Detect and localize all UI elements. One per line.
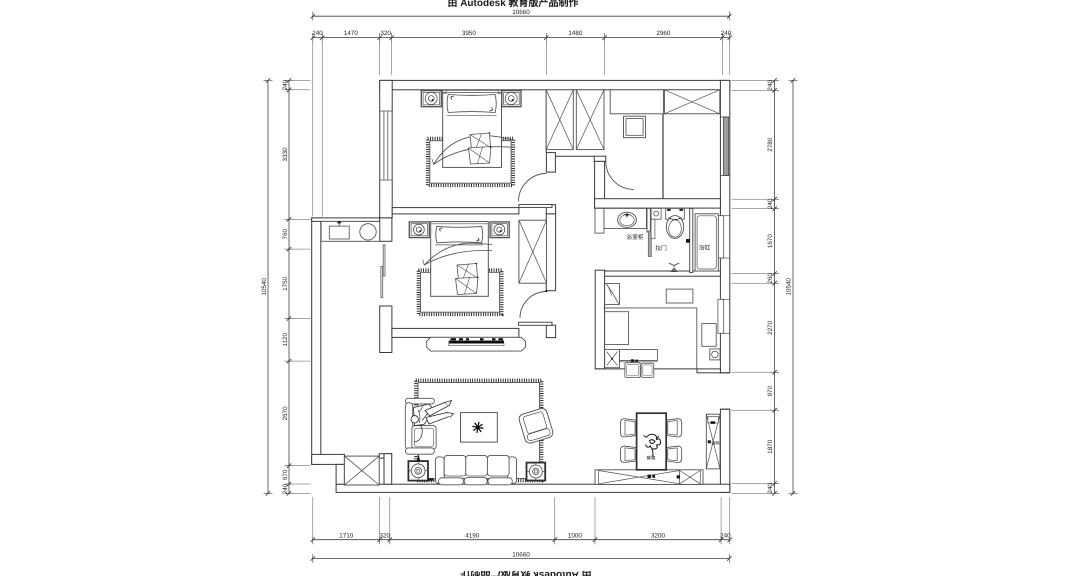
svg-text:1710: 1710: [339, 532, 354, 539]
svg-text:3330: 3330: [282, 147, 289, 162]
svg-text:240: 240: [282, 79, 289, 90]
svg-text:970: 970: [767, 385, 774, 396]
svg-text:由 Autodesk 教育版产品制作: 由 Autodesk 教育版产品制作: [447, 0, 578, 9]
svg-text:240: 240: [767, 483, 774, 494]
svg-text:10660: 10660: [512, 9, 530, 16]
svg-text:320: 320: [380, 30, 391, 37]
svg-text:拉门: 拉门: [655, 245, 667, 252]
svg-text:2780: 2780: [767, 137, 774, 152]
svg-text:由 Autodesk 教育版产品制作: 由 Autodesk 教育版产品制作: [460, 569, 591, 576]
svg-text:2270: 2270: [767, 320, 774, 335]
svg-text:240: 240: [282, 483, 289, 494]
svg-text:2670: 2670: [282, 406, 289, 421]
svg-text:3200: 3200: [651, 532, 666, 539]
svg-text:1670: 1670: [767, 234, 774, 249]
svg-text:240: 240: [767, 198, 774, 209]
svg-text:1470: 1470: [344, 30, 359, 37]
svg-text:240: 240: [767, 80, 774, 91]
svg-text:670: 670: [282, 469, 289, 480]
svg-text:10540: 10540: [261, 278, 268, 296]
svg-text:酒柜: 酒柜: [711, 441, 719, 446]
svg-text:1480: 1480: [568, 30, 583, 37]
svg-text:3950: 3950: [462, 30, 477, 37]
svg-text:320: 320: [379, 532, 390, 539]
svg-text:浴缸: 浴缸: [699, 245, 711, 252]
svg-text:1120: 1120: [282, 333, 289, 347]
svg-text:10540: 10540: [786, 278, 793, 296]
svg-text:10660: 10660: [512, 551, 530, 558]
svg-text:浴室柜: 浴室柜: [626, 234, 644, 241]
svg-text:760: 760: [282, 228, 289, 239]
svg-text:1750: 1750: [282, 276, 289, 291]
svg-text:餐桌: 餐桌: [647, 456, 656, 461]
svg-text:1870: 1870: [767, 439, 774, 454]
svg-text:4190: 4190: [465, 532, 480, 539]
svg-text:2960: 2960: [656, 30, 671, 37]
svg-text:240: 240: [312, 30, 323, 37]
svg-text:1000: 1000: [568, 532, 583, 539]
svg-text:260: 260: [767, 273, 774, 284]
svg-text:240: 240: [720, 532, 731, 539]
svg-text:240: 240: [721, 30, 732, 37]
